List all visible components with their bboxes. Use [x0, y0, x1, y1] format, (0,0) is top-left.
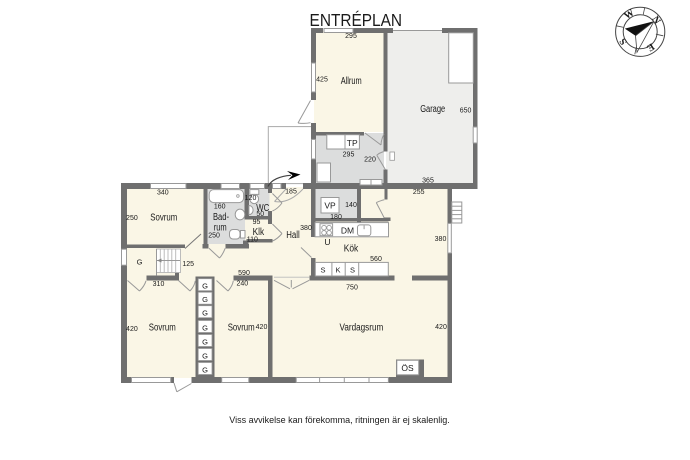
- svg-text:185: 185: [285, 188, 297, 195]
- svg-text:590: 590: [238, 270, 250, 277]
- svg-text:ENTRÉPLAN: ENTRÉPLAN: [310, 10, 403, 30]
- svg-text:G: G: [202, 351, 208, 360]
- svg-text:310: 310: [153, 281, 165, 288]
- svg-text:DM: DM: [341, 226, 354, 236]
- svg-text:U: U: [324, 237, 330, 247]
- svg-text:255: 255: [413, 189, 425, 196]
- svg-text:250: 250: [208, 233, 220, 240]
- svg-text:140: 140: [345, 202, 357, 209]
- svg-text:420: 420: [256, 324, 268, 331]
- svg-text:365: 365: [422, 177, 434, 184]
- svg-text:425: 425: [316, 77, 328, 84]
- svg-text:180: 180: [330, 214, 342, 221]
- svg-text:560: 560: [370, 256, 382, 263]
- svg-text:125: 125: [182, 261, 194, 268]
- svg-text:Garage: Garage: [420, 104, 445, 115]
- svg-text:295: 295: [345, 33, 357, 40]
- svg-text:G: G: [137, 258, 143, 267]
- svg-text:380: 380: [300, 225, 312, 232]
- svg-text:420: 420: [435, 324, 447, 331]
- svg-text:420: 420: [126, 326, 138, 333]
- svg-text:S: S: [320, 265, 325, 274]
- svg-text:95: 95: [253, 219, 261, 226]
- svg-text:Vardagsrum: Vardagsrum: [340, 323, 384, 334]
- svg-text:Bad-: Bad-: [213, 212, 229, 223]
- svg-text:650: 650: [460, 108, 472, 115]
- svg-text:Sovrum: Sovrum: [228, 323, 255, 334]
- svg-text:50: 50: [256, 211, 264, 218]
- svg-text:G: G: [202, 337, 208, 346]
- svg-text:K: K: [335, 265, 340, 274]
- svg-text:380: 380: [435, 236, 447, 243]
- svg-text:160: 160: [214, 203, 226, 210]
- svg-text:Hall: Hall: [286, 230, 300, 241]
- svg-text:Sovrum: Sovrum: [149, 323, 176, 334]
- svg-text:S: S: [350, 265, 355, 274]
- svg-text:240: 240: [236, 281, 248, 288]
- svg-text:TP: TP: [347, 138, 358, 148]
- svg-text:G: G: [202, 309, 208, 318]
- svg-text:295: 295: [343, 151, 355, 158]
- svg-text:340: 340: [157, 190, 169, 197]
- svg-text:220: 220: [364, 157, 376, 164]
- svg-text:Kök: Kök: [344, 244, 359, 255]
- svg-text:Viss avvikelse kan förekomma,: Viss avvikelse kan förekomma, ritningen …: [229, 415, 449, 425]
- svg-text:G: G: [202, 323, 208, 332]
- svg-text:250: 250: [126, 215, 138, 222]
- svg-text:G: G: [202, 295, 208, 304]
- svg-text:ÖS: ÖS: [401, 363, 414, 373]
- svg-text:110: 110: [247, 236, 258, 243]
- svg-text:750: 750: [346, 285, 358, 292]
- svg-text:Allrum: Allrum: [341, 76, 362, 87]
- svg-text:120: 120: [245, 195, 257, 202]
- svg-text:G: G: [202, 365, 208, 374]
- svg-text:G: G: [202, 282, 208, 291]
- svg-text:Sovrum: Sovrum: [150, 213, 177, 224]
- svg-text:VP: VP: [324, 201, 336, 211]
